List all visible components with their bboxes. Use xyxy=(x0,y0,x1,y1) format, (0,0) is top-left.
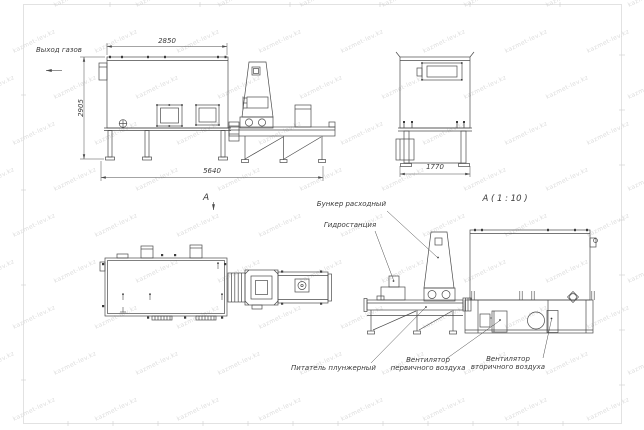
detail-view-title: А ( 1 : 10 ) xyxy=(465,195,545,203)
drawing-sheet: kazmet-lev.kzkazmet-lev.kzkazmet-lev.kzk… xyxy=(0,0,644,430)
valve xyxy=(119,120,127,128)
lifting-lugs xyxy=(120,262,223,312)
dim-5640-text: 5640 xyxy=(192,167,232,175)
hydrostation-box xyxy=(381,276,405,300)
dim-2905-text: 2905 xyxy=(77,88,85,128)
view-detail xyxy=(364,211,598,363)
access-door xyxy=(195,104,220,126)
support-legs xyxy=(106,131,228,161)
feeder-plan xyxy=(228,270,332,309)
dim-1770-text: 1770 xyxy=(415,163,455,171)
furnace-body-detail xyxy=(470,229,598,303)
feed-hopper-detail xyxy=(424,232,455,301)
primary-air-fan xyxy=(480,311,507,332)
callout-feed-hopper: Бункер расходный xyxy=(306,200,386,208)
secondary-air-fan xyxy=(528,311,559,333)
dim-2850-text: 2850 xyxy=(147,37,187,45)
feed-hopper-side xyxy=(240,62,273,128)
callout-plunger-feeder: Питатель плунжерный xyxy=(291,364,371,372)
view-plan xyxy=(100,245,332,320)
conveyor-end-box xyxy=(396,139,414,160)
base-frame xyxy=(396,128,472,167)
view-front xyxy=(396,52,474,177)
outlet-opening xyxy=(417,62,463,80)
callout-secondary-fan-line2: вторичного воздуха xyxy=(468,364,548,372)
callout-secondary-fan: Вентилятор вторичного воздуха xyxy=(468,356,548,371)
truss-frame xyxy=(242,136,326,163)
callout-primary-fan-line2: первичного воздуха xyxy=(388,365,468,373)
chute-box xyxy=(295,105,311,127)
plan-bolts xyxy=(102,254,322,319)
gas-outlet-stub xyxy=(99,63,107,80)
base-frame-detail xyxy=(465,300,593,333)
furnace-body xyxy=(99,56,231,160)
view-a-label: А xyxy=(203,194,209,202)
view-side xyxy=(46,43,335,210)
gas-outlet-label: Выход газов xyxy=(36,46,82,54)
callout-hydrostation: Гидростанция xyxy=(322,221,378,229)
access-door xyxy=(156,104,183,127)
callout-primary-fan: Вентилятор первичного воздуха xyxy=(388,357,468,372)
anchor-bolts xyxy=(403,121,465,128)
feeder-conveyor-detail xyxy=(364,296,471,334)
drain-hatch xyxy=(568,292,579,303)
feeder-conveyor-side xyxy=(229,105,335,163)
